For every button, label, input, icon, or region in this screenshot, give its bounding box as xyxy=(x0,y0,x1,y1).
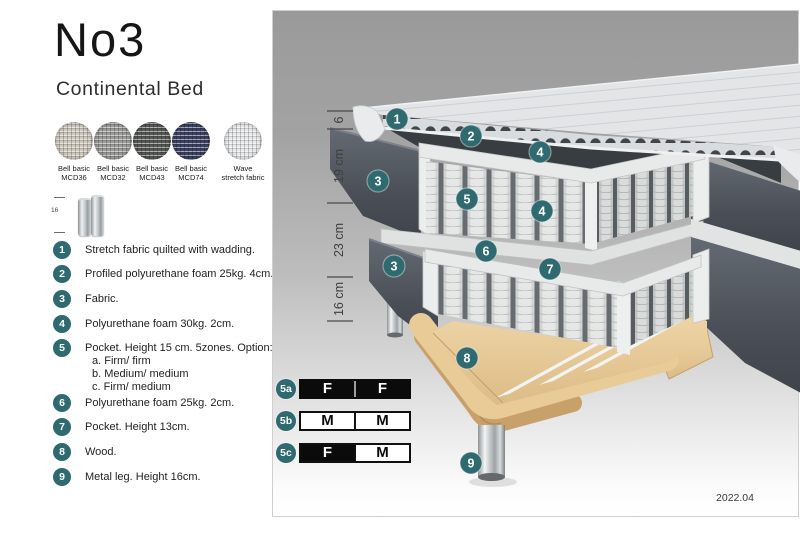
page-subtitle: Continental Bed xyxy=(56,78,204,101)
legend-item-7: 7 Pocket. Height 13cm. xyxy=(53,418,272,436)
legend-item-9: 9 Metal leg. Height 16cm. xyxy=(53,468,272,486)
legend-text: Polyurethane foam 25kg. 2cm. xyxy=(85,396,234,410)
callout-2: 2 xyxy=(460,125,482,147)
leg-height-value: 16 xyxy=(51,207,58,214)
firmness-table-5b: M M xyxy=(299,411,411,431)
fabric-swatch-image xyxy=(224,122,262,160)
legend-number: 7 xyxy=(53,418,71,436)
svg-text:8: 8 xyxy=(464,352,471,366)
fabric-swatch-wave: Wavestretch fabric xyxy=(217,122,269,182)
callout-9: 9 xyxy=(460,452,482,474)
legend-text: Stretch fabric quilted with wadding. xyxy=(85,243,255,257)
product-sheet: No3 Continental Bed Bell basicMCD36 Bell… xyxy=(0,0,800,533)
svg-text:3: 3 xyxy=(391,260,398,274)
firmness-table-5a: F F xyxy=(299,379,411,399)
info-panel: No3 Continental Bed Bell basicMCD36 Bell… xyxy=(0,0,272,533)
svg-text:9: 9 xyxy=(468,457,475,471)
legend-item-2: 2 Profiled polyurethane foam 25kg. 4cm. xyxy=(53,265,272,283)
callout-5: 5 xyxy=(456,188,478,210)
version-date: 2022.04 xyxy=(716,492,754,504)
dim-topper: 6 xyxy=(332,116,346,123)
legend-item-3: 3 Fabric. xyxy=(53,290,272,308)
legend-number: 1 xyxy=(53,241,71,259)
dim-lower-box: 23 cm xyxy=(332,223,346,257)
legend-number: 3 xyxy=(53,290,71,308)
legend-text: Profiled polyurethane foam 25kg. 4cm. xyxy=(85,267,273,281)
metal-leg-image xyxy=(91,195,104,236)
firmness-badge-5c: 5c xyxy=(276,443,296,463)
callout-8: 8 xyxy=(456,347,478,369)
svg-text:6: 6 xyxy=(483,245,490,259)
leg-height-icon: 16 xyxy=(50,192,130,242)
dim-upper-box: 19 cm xyxy=(332,149,346,183)
callout-3-upper: 3 xyxy=(367,170,389,192)
fabric-swatch-label: Wavestretch fabric xyxy=(217,164,269,182)
legend-text: Polyurethane foam 30kg. 2cm. xyxy=(85,317,234,331)
svg-text:2: 2 xyxy=(468,130,475,144)
callout-4-upper: 4 xyxy=(529,141,551,163)
firmness-badge-5b: 5b xyxy=(276,411,296,431)
callout-4-lower: 4 xyxy=(531,200,553,222)
legend-text: Fabric. xyxy=(85,292,119,306)
legend-number: 9 xyxy=(53,468,71,486)
dimension-tick xyxy=(54,232,65,233)
legend-text: Pocket. Height 15 cm. 5zones. Option: xyxy=(85,341,273,355)
legend-item-8: 8 Wood. xyxy=(53,443,272,461)
svg-text:1: 1 xyxy=(394,113,401,127)
firmness-cell: F xyxy=(301,381,354,397)
diagram-panel: 6 19 cm 23 cm 16 cm 1 2 4 3 5 4 6 7 3 8 … xyxy=(272,10,799,517)
callout-3-lower: 3 xyxy=(383,255,405,277)
firmness-cell: F xyxy=(354,381,409,397)
svg-text:5: 5 xyxy=(464,193,471,207)
callout-6: 6 xyxy=(475,240,497,262)
legend-item-1: 1 Stretch fabric quilted with wadding. xyxy=(53,241,272,259)
dim-leg: 16 cm xyxy=(332,282,346,316)
firmness-row-5b: 5b M M xyxy=(273,411,433,431)
legend-number: 8 xyxy=(53,443,71,461)
firmness-row-5a: 5a F F xyxy=(273,379,433,399)
callout-7: 7 xyxy=(539,258,561,280)
dimension-tick xyxy=(54,197,65,198)
legend-text: Metal leg. Height 16cm. xyxy=(85,470,201,484)
fabric-swatch-image xyxy=(172,122,210,160)
metal-leg-image xyxy=(78,198,91,236)
legend-item-6: 6 Polyurethane foam 25kg. 2cm. xyxy=(53,394,272,412)
svg-text:4: 4 xyxy=(537,146,544,160)
legend-number: 2 xyxy=(53,265,71,283)
bed-cutaway-illustration: 6 19 cm 23 cm 16 cm 1 2 4 3 5 4 6 7 3 8 … xyxy=(273,11,800,518)
fabric-swatch-mcd74: Bell basicMCD74 xyxy=(165,122,217,182)
legend-number: 4 xyxy=(53,315,71,333)
firmness-cell: M xyxy=(301,413,354,429)
callout-1: 1 xyxy=(386,108,408,130)
legend-number: 6 xyxy=(53,394,71,412)
legend-text: Pocket. Height 13cm. xyxy=(85,420,190,434)
firmness-cell: M xyxy=(354,413,409,429)
firmness-cell: F xyxy=(301,445,354,461)
svg-text:4: 4 xyxy=(539,205,546,219)
firmness-table-5c: F M xyxy=(299,443,411,463)
legend-item-5-options: a. Firm/ firm b. Medium/ medium c. Firm/… xyxy=(92,355,189,394)
legend-item-4: 4 Polyurethane foam 30kg. 2cm. xyxy=(53,315,272,333)
fabric-swatch-label: Bell basicMCD74 xyxy=(165,164,217,182)
legend-text: Wood. xyxy=(85,445,117,459)
svg-text:3: 3 xyxy=(375,175,382,189)
firmness-row-5c: 5c F M xyxy=(273,443,433,463)
firmness-badge-5a: 5a xyxy=(276,379,296,399)
firmness-cell: M xyxy=(354,445,409,461)
page-title: No3 xyxy=(54,14,146,66)
legend-number: 5 xyxy=(53,339,71,357)
svg-text:7: 7 xyxy=(547,263,554,277)
